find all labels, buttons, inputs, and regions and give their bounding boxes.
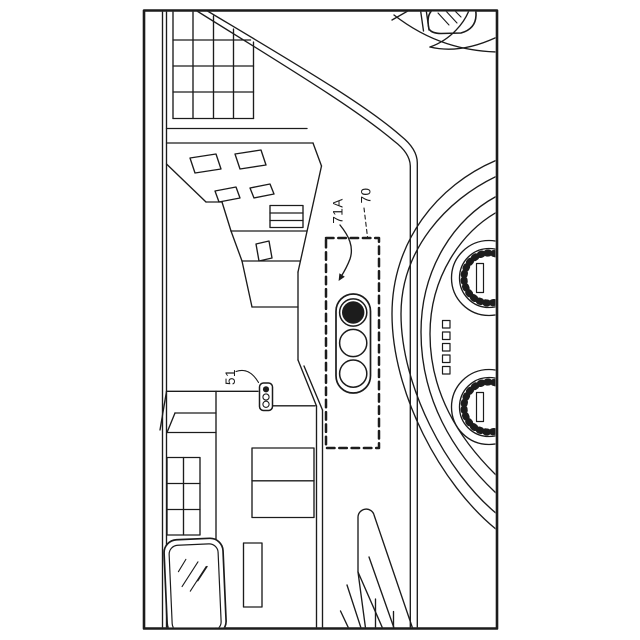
hud-traffic-light-icon xyxy=(336,294,371,393)
gauge-needle xyxy=(477,264,484,293)
patent-figure-page: 51 xyxy=(0,0,640,640)
reference-label-71a: 71A xyxy=(331,198,346,224)
window-pane xyxy=(190,154,221,173)
window-pane xyxy=(256,241,272,261)
instrument-cluster-buttons xyxy=(443,321,451,375)
patent-drawing: 51 xyxy=(0,0,640,640)
reference-label-70: 70 xyxy=(359,187,374,203)
window-pane xyxy=(235,150,266,169)
drawing-frame xyxy=(144,11,497,629)
lit-lamp xyxy=(342,301,364,323)
side-mirror xyxy=(164,538,227,636)
gauge-needle xyxy=(477,393,484,422)
